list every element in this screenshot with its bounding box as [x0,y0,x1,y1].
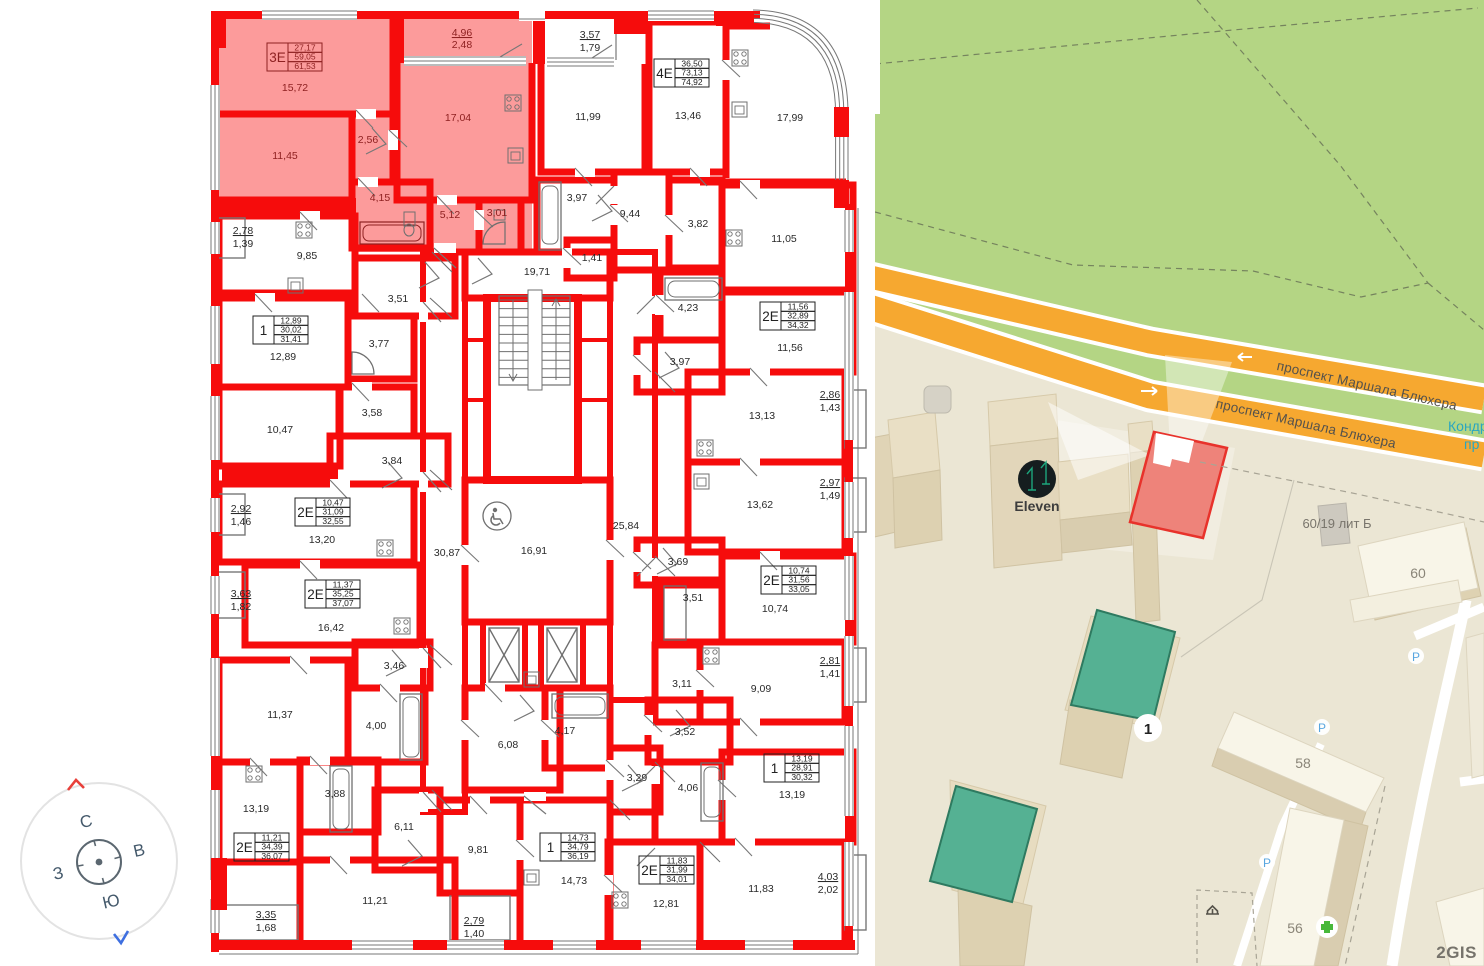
svg-text:11,99: 11,99 [575,111,601,123]
svg-text:11,83: 11,83 [748,883,774,895]
svg-text:2Е: 2Е [641,863,658,878]
svg-text:1: 1 [547,840,555,855]
svg-text:1,82: 1,82 [231,601,252,613]
svg-text:4Е: 4Е [656,66,673,81]
svg-text:С: С [78,811,94,832]
svg-text:4,96: 4,96 [452,27,473,39]
svg-text:37,07: 37,07 [332,598,354,608]
svg-text:2,02: 2,02 [818,884,839,896]
svg-text:11,05: 11,05 [771,233,797,245]
svg-text:Eleven: Eleven [1014,498,1059,514]
svg-text:3,29: 3,29 [627,772,648,784]
svg-text:1,41: 1,41 [582,252,603,264]
svg-text:1,40: 1,40 [464,928,485,940]
svg-text:16,42: 16,42 [318,622,344,634]
svg-text:13,62: 13,62 [747,499,773,511]
svg-text:3,82: 3,82 [688,218,709,230]
svg-text:3,35: 3,35 [256,909,277,921]
svg-text:4,03: 4,03 [818,871,839,883]
svg-text:P: P [1412,650,1420,664]
svg-text:12,81: 12,81 [653,898,679,910]
svg-text:2,86: 2,86 [820,389,841,401]
svg-text:2Е: 2Е [297,505,314,520]
svg-text:2Е: 2Е [236,840,253,855]
svg-text:9,81: 9,81 [468,844,489,856]
svg-text:6,08: 6,08 [498,739,519,751]
svg-text:2,78: 2,78 [233,225,254,237]
svg-text:10,47: 10,47 [267,424,293,436]
svg-text:32,55: 32,55 [322,516,344,526]
svg-text:3,52: 3,52 [675,726,696,738]
svg-text:1: 1 [771,761,779,776]
svg-text:P: P [1318,721,1326,735]
svg-text:13,19: 13,19 [243,803,269,815]
svg-text:3,11: 3,11 [672,678,692,690]
svg-text:3,58: 3,58 [362,407,383,419]
svg-text:34,01: 34,01 [666,874,688,884]
svg-text:2,48: 2,48 [452,39,473,51]
svg-text:4,06: 4,06 [678,782,699,794]
svg-text:15,72: 15,72 [282,82,308,94]
svg-text:13,46: 13,46 [675,110,701,122]
svg-text:пр: пр [1464,436,1480,452]
svg-text:11,21: 11,21 [362,895,388,907]
svg-text:56: 56 [1287,920,1303,936]
svg-text:13,13: 13,13 [749,410,775,422]
svg-text:1: 1 [260,323,268,338]
svg-text:10,74: 10,74 [762,603,788,615]
svg-text:3,63: 3,63 [231,588,252,600]
svg-text:31,41: 31,41 [280,334,302,344]
svg-text:9,85: 9,85 [297,250,318,262]
svg-text:2,97: 2,97 [820,477,841,489]
svg-text:25,84: 25,84 [613,520,639,532]
svg-text:36,07: 36,07 [261,851,283,861]
svg-text:1,49: 1,49 [820,490,841,502]
svg-text:З: З [51,863,65,884]
svg-text:3,01: 3,01 [487,207,508,219]
svg-text:4,15: 4,15 [370,192,391,204]
svg-text:В: В [131,840,146,861]
svg-text:12,89: 12,89 [270,351,296,363]
svg-text:58: 58 [1295,755,1311,771]
svg-text:13,19: 13,19 [779,789,805,801]
svg-text:14,73: 14,73 [561,875,587,887]
svg-text:Кондрат: Кондрат [1448,418,1484,434]
svg-text:3,51: 3,51 [388,293,409,305]
svg-text:1,41: 1,41 [820,668,841,680]
svg-text:2,79: 2,79 [464,915,485,927]
svg-text:74,92: 74,92 [681,77,703,87]
svg-text:4,17: 4,17 [555,725,576,737]
svg-text:9,44: 9,44 [620,208,641,220]
svg-text:1: 1 [1144,721,1152,738]
svg-text:19,71: 19,71 [524,266,550,278]
svg-text:4,00: 4,00 [366,720,387,732]
svg-text:2Е: 2Е [763,573,780,588]
svg-text:11,56: 11,56 [777,342,803,354]
svg-text:2,81: 2,81 [820,655,841,667]
svg-text:2,92: 2,92 [231,503,252,515]
svg-text:1,46: 1,46 [231,516,252,528]
svg-text:36,19: 36,19 [567,851,589,861]
svg-text:60: 60 [1410,565,1426,581]
svg-text:13,20: 13,20 [309,534,335,546]
svg-text:3,84: 3,84 [382,455,403,467]
svg-text:3,97: 3,97 [567,192,588,204]
svg-text:Ю: Ю [101,890,122,912]
svg-text:61,53: 61,53 [294,61,316,71]
svg-text:11,37: 11,37 [267,709,293,721]
svg-text:5,12: 5,12 [440,209,461,221]
svg-text:34,32: 34,32 [787,320,809,330]
svg-text:2Е: 2Е [307,587,324,602]
svg-text:3,51: 3,51 [683,592,704,604]
svg-text:1,68: 1,68 [256,922,277,934]
svg-text:3,69: 3,69 [668,556,689,568]
svg-text:3,88: 3,88 [325,788,346,800]
svg-text:3,77: 3,77 [369,338,390,350]
svg-text:16,91: 16,91 [521,545,547,557]
svg-text:3Е: 3Е [269,50,286,65]
svg-text:2GIS: 2GIS [1436,943,1477,962]
svg-text:33,05: 33,05 [788,584,810,594]
svg-text:30,87: 30,87 [434,547,460,559]
svg-text:3,57: 3,57 [580,29,601,41]
svg-text:2,56: 2,56 [358,134,379,146]
svg-text:1,43: 1,43 [820,402,841,414]
svg-text:6,11: 6,11 [394,821,414,833]
svg-text:11,45: 11,45 [272,150,298,162]
svg-text:9,09: 9,09 [751,683,772,695]
svg-text:17,04: 17,04 [445,112,471,124]
svg-text:1,79: 1,79 [580,42,601,54]
svg-text:3,46: 3,46 [384,660,405,672]
svg-text:60/19 лит Б: 60/19 лит Б [1302,516,1371,531]
svg-text:3,97: 3,97 [670,356,691,368]
svg-text:30,32: 30,32 [791,772,813,782]
svg-text:P: P [1263,856,1271,870]
svg-text:17,99: 17,99 [777,112,803,124]
svg-text:4,23: 4,23 [678,302,699,314]
svg-text:2Е: 2Е [762,309,779,324]
svg-text:1,39: 1,39 [233,238,254,250]
